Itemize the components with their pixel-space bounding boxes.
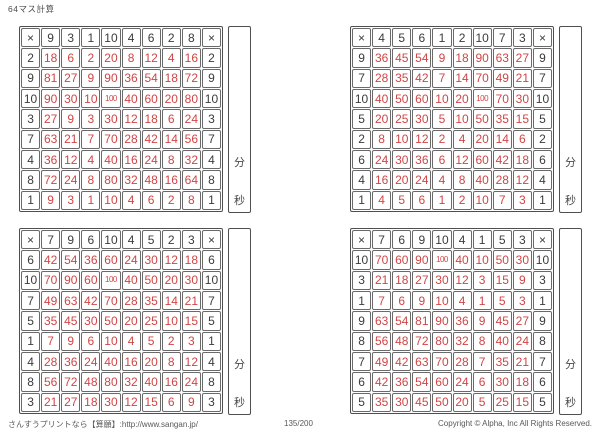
product-cell: 12 bbox=[122, 393, 141, 412]
multiplication-grid-bottom-left: ×796104523×64254366024301218610709060100… bbox=[19, 228, 223, 414]
product-cell: 25 bbox=[392, 109, 411, 128]
product-cell: 42 bbox=[41, 250, 60, 269]
row-factor-cell: 1 bbox=[352, 291, 371, 310]
product-cell: 6 bbox=[162, 393, 181, 412]
product-cell: 6 bbox=[513, 130, 532, 149]
product-cell: 80 bbox=[101, 170, 120, 189]
product-cell: 40 bbox=[101, 352, 120, 371]
product-cell: 30 bbox=[392, 150, 411, 169]
product-cell: 14 bbox=[162, 291, 181, 310]
row-factor-cell: 5 bbox=[352, 109, 371, 128]
row-factor-cell: 8 bbox=[21, 372, 40, 391]
product-cell: 30 bbox=[392, 393, 411, 412]
header-factor-cell: 9 bbox=[61, 230, 80, 249]
row-factor-cell-right: 9 bbox=[533, 311, 552, 330]
product-cell: 35 bbox=[493, 109, 512, 128]
header-factor-cell: 7 bbox=[372, 230, 391, 249]
header-factor-cell: 5 bbox=[142, 230, 161, 249]
header-factor-cell: 9 bbox=[412, 230, 431, 249]
header-factor-cell: 5 bbox=[493, 230, 512, 249]
product-cell: 30 bbox=[101, 393, 120, 412]
product-cell: 64 bbox=[182, 170, 201, 189]
product-cell: 21 bbox=[182, 291, 201, 310]
product-cell: 72 bbox=[412, 332, 431, 351]
product-cell: 12 bbox=[61, 150, 80, 169]
product-cell: 12 bbox=[453, 271, 472, 290]
row-factor-cell-right: 3 bbox=[533, 271, 552, 290]
product-cell: 27 bbox=[61, 393, 80, 412]
product-cell: 16 bbox=[122, 352, 141, 371]
quadrant-top-right: ×456121073×93645549189063279728354271470… bbox=[350, 26, 554, 212]
product-cell: 63 bbox=[493, 48, 512, 67]
product-cell: 24 bbox=[372, 150, 391, 169]
row-factor-cell-right: 6 bbox=[533, 150, 552, 169]
product-cell: 8 bbox=[372, 130, 391, 149]
row-factor-cell-right: 4 bbox=[202, 352, 221, 371]
product-cell: 5 bbox=[493, 291, 512, 310]
product-cell: 49 bbox=[372, 352, 391, 371]
product-cell: 81 bbox=[412, 311, 431, 330]
product-cell: 60 bbox=[81, 271, 100, 290]
product-cell: 3 bbox=[513, 191, 532, 210]
product-cell: 7 bbox=[41, 332, 60, 351]
product-cell: 8 bbox=[453, 170, 472, 189]
product-cell: 50 bbox=[392, 89, 411, 108]
row-factor-cell: 10 bbox=[21, 89, 40, 108]
header-factor-cell: 2 bbox=[162, 230, 181, 249]
product-cell: 8 bbox=[122, 48, 141, 67]
product-cell: 60 bbox=[101, 250, 120, 269]
header-factor-cell: 10 bbox=[432, 230, 451, 249]
quadrant-bottom-right: ×769104153×10706090100401050301032118273… bbox=[350, 228, 554, 414]
row-factor-cell: 2 bbox=[352, 130, 371, 149]
product-cell: 100 bbox=[101, 89, 120, 108]
product-cell: 60 bbox=[412, 89, 431, 108]
product-cell: 5 bbox=[392, 191, 411, 210]
product-cell: 70 bbox=[101, 130, 120, 149]
product-cell: 16 bbox=[372, 170, 391, 189]
product-cell: 10 bbox=[473, 250, 492, 269]
product-cell: 35 bbox=[372, 393, 391, 412]
footer-copyright: Copyright © Alpha, Inc All Rights Reserv… bbox=[438, 419, 592, 428]
product-cell: 7 bbox=[432, 69, 451, 88]
product-cell: 4 bbox=[162, 48, 181, 67]
row-factor-cell: 6 bbox=[21, 250, 40, 269]
product-cell: 28 bbox=[122, 130, 141, 149]
row-factor-cell-right: 8 bbox=[202, 170, 221, 189]
product-cell: 16 bbox=[162, 372, 181, 391]
product-cell: 48 bbox=[81, 372, 100, 391]
product-cell: 10 bbox=[473, 191, 492, 210]
product-cell: 10 bbox=[162, 311, 181, 330]
product-cell: 42 bbox=[493, 150, 512, 169]
product-cell: 24 bbox=[513, 332, 532, 351]
row-factor-cell: 10 bbox=[352, 89, 371, 108]
product-cell: 36 bbox=[412, 150, 431, 169]
product-cell: 36 bbox=[122, 69, 141, 88]
product-cell: 9 bbox=[61, 332, 80, 351]
product-cell: 60 bbox=[142, 89, 161, 108]
product-cell: 56 bbox=[182, 130, 201, 149]
product-cell: 21 bbox=[372, 271, 391, 290]
row-factor-cell-right: 1 bbox=[202, 191, 221, 210]
row-factor-cell-right: 7 bbox=[202, 130, 221, 149]
product-cell: 50 bbox=[473, 109, 492, 128]
product-cell: 60 bbox=[392, 250, 411, 269]
row-factor-cell: 10 bbox=[21, 271, 40, 290]
product-cell: 6 bbox=[412, 191, 431, 210]
product-cell: 18 bbox=[513, 372, 532, 391]
product-cell: 6 bbox=[142, 191, 161, 210]
product-cell: 4 bbox=[432, 170, 451, 189]
row-factor-cell: 1 bbox=[21, 191, 40, 210]
product-cell: 35 bbox=[493, 352, 512, 371]
product-cell: 18 bbox=[81, 393, 100, 412]
product-cell: 9 bbox=[432, 48, 451, 67]
worksheet-page: { "page": { "title": "64マス計算" }, "multip… bbox=[0, 0, 600, 435]
product-cell: 45 bbox=[392, 48, 411, 67]
product-cell: 4 bbox=[81, 150, 100, 169]
header-factor-cell: 3 bbox=[61, 28, 80, 47]
row-factor-cell-right: 2 bbox=[202, 48, 221, 67]
product-cell: 6 bbox=[162, 109, 181, 128]
row-factor-cell-right: 5 bbox=[202, 311, 221, 330]
product-cell: 70 bbox=[493, 89, 512, 108]
product-cell: 27 bbox=[513, 311, 532, 330]
product-cell: 1 bbox=[81, 191, 100, 210]
product-cell: 6 bbox=[81, 332, 100, 351]
product-cell: 70 bbox=[41, 271, 60, 290]
row-factor-cell-right: 8 bbox=[202, 372, 221, 391]
product-cell: 9 bbox=[513, 271, 532, 290]
product-cell: 48 bbox=[392, 332, 411, 351]
product-cell: 30 bbox=[142, 250, 161, 269]
product-cell: 72 bbox=[61, 372, 80, 391]
product-cell: 10 bbox=[392, 130, 411, 149]
product-cell: 54 bbox=[392, 311, 411, 330]
header-factor-cell: 7 bbox=[493, 28, 512, 47]
row-factor-cell-right: 10 bbox=[533, 89, 552, 108]
product-cell: 18 bbox=[392, 271, 411, 290]
product-cell: 20 bbox=[162, 271, 181, 290]
product-cell: 20 bbox=[372, 109, 391, 128]
header-factor-cell: 4 bbox=[122, 230, 141, 249]
product-cell: 6 bbox=[473, 372, 492, 391]
product-cell: 18 bbox=[453, 48, 472, 67]
product-cell: 63 bbox=[372, 311, 391, 330]
product-cell: 25 bbox=[142, 311, 161, 330]
product-cell: 4 bbox=[453, 130, 472, 149]
header-factor-cell: 6 bbox=[392, 230, 411, 249]
row-factor-cell-right: 3 bbox=[202, 393, 221, 412]
row-factor-cell: 3 bbox=[21, 393, 40, 412]
row-factor-cell-right: 10 bbox=[202, 89, 221, 108]
product-cell: 7 bbox=[81, 130, 100, 149]
product-cell: 32 bbox=[182, 150, 201, 169]
product-cell: 4 bbox=[453, 291, 472, 310]
product-cell: 42 bbox=[81, 291, 100, 310]
row-factor-cell: 8 bbox=[21, 170, 40, 189]
product-cell: 10 bbox=[453, 109, 472, 128]
product-cell: 21 bbox=[41, 393, 60, 412]
product-cell: 28 bbox=[41, 352, 60, 371]
multiply-sign-cell: × bbox=[533, 230, 552, 249]
header-factor-cell: 1 bbox=[432, 28, 451, 47]
product-cell: 2 bbox=[162, 191, 181, 210]
product-cell: 50 bbox=[142, 271, 161, 290]
row-factor-cell: 2 bbox=[21, 48, 40, 67]
row-factor-cell-right: 10 bbox=[202, 271, 221, 290]
product-cell: 21 bbox=[513, 352, 532, 371]
row-factor-cell-right: 9 bbox=[202, 69, 221, 88]
row-factor-cell: 1 bbox=[352, 191, 371, 210]
seconds-label: 秒 bbox=[229, 192, 250, 208]
row-factor-cell-right: 1 bbox=[533, 191, 552, 210]
header-factor-cell: 2 bbox=[162, 28, 181, 47]
product-cell: 35 bbox=[392, 69, 411, 88]
product-cell: 40 bbox=[473, 170, 492, 189]
product-cell: 70 bbox=[101, 291, 120, 310]
product-cell: 42 bbox=[392, 352, 411, 371]
product-cell: 30 bbox=[493, 372, 512, 391]
product-cell: 49 bbox=[493, 69, 512, 88]
row-factor-cell: 7 bbox=[352, 69, 371, 88]
product-cell: 12 bbox=[182, 352, 201, 371]
minutes-label: 分 bbox=[560, 356, 581, 372]
header-factor-cell: 4 bbox=[372, 28, 391, 47]
product-cell: 30 bbox=[101, 109, 120, 128]
product-cell: 90 bbox=[101, 69, 120, 88]
product-cell: 24 bbox=[182, 372, 201, 391]
product-cell: 10 bbox=[432, 291, 451, 310]
multiply-sign-cell: × bbox=[533, 28, 552, 47]
row-factor-cell: 10 bbox=[352, 250, 371, 269]
product-cell: 42 bbox=[372, 372, 391, 391]
product-cell: 9 bbox=[61, 109, 80, 128]
product-cell: 9 bbox=[81, 69, 100, 88]
row-factor-cell: 5 bbox=[21, 311, 40, 330]
row-factor-cell: 9 bbox=[352, 48, 371, 67]
row-factor-cell-right: 2 bbox=[533, 130, 552, 149]
product-cell: 8 bbox=[81, 170, 100, 189]
multiply-sign-cell: × bbox=[21, 28, 40, 47]
product-cell: 30 bbox=[81, 311, 100, 330]
product-cell: 24 bbox=[412, 170, 431, 189]
product-cell: 50 bbox=[432, 393, 451, 412]
header-factor-cell: 3 bbox=[513, 230, 532, 249]
product-cell: 40 bbox=[122, 271, 141, 290]
product-cell: 63 bbox=[41, 130, 60, 149]
row-factor-cell-right: 4 bbox=[533, 170, 552, 189]
product-cell: 25 bbox=[493, 393, 512, 412]
product-cell: 9 bbox=[473, 311, 492, 330]
product-cell: 48 bbox=[142, 170, 161, 189]
product-cell: 18 bbox=[513, 150, 532, 169]
product-cell: 32 bbox=[122, 372, 141, 391]
product-cell: 8 bbox=[473, 332, 492, 351]
product-cell: 80 bbox=[432, 332, 451, 351]
product-cell: 20 bbox=[122, 311, 141, 330]
header-factor-cell: 3 bbox=[513, 28, 532, 47]
row-factor-cell-right: 5 bbox=[533, 393, 552, 412]
product-cell: 30 bbox=[412, 109, 431, 128]
footer: さんすうプリントなら【算願】:http://www.sangan.jp/ 135… bbox=[0, 419, 600, 431]
product-cell: 24 bbox=[453, 372, 472, 391]
product-cell: 81 bbox=[41, 69, 60, 88]
product-cell: 9 bbox=[412, 291, 431, 310]
product-cell: 54 bbox=[61, 250, 80, 269]
row-factor-cell-right: 7 bbox=[202, 291, 221, 310]
product-cell: 100 bbox=[432, 250, 451, 269]
product-cell: 20 bbox=[453, 393, 472, 412]
product-cell: 70 bbox=[432, 352, 451, 371]
row-factor-cell: 4 bbox=[21, 352, 40, 371]
row-factor-cell-right: 9 bbox=[533, 48, 552, 67]
product-cell: 40 bbox=[453, 250, 472, 269]
product-cell: 1 bbox=[473, 291, 492, 310]
row-factor-cell: 8 bbox=[352, 332, 371, 351]
product-cell: 90 bbox=[432, 311, 451, 330]
product-cell: 6 bbox=[392, 291, 411, 310]
product-cell: 24 bbox=[182, 109, 201, 128]
product-cell: 10 bbox=[432, 89, 451, 108]
product-cell: 90 bbox=[412, 250, 431, 269]
timer-box-top-left: 分 秒 bbox=[228, 26, 251, 213]
quadrant-bottom-left: ×796104523×64254366024301218610709060100… bbox=[19, 228, 223, 414]
row-factor-cell: 5 bbox=[352, 393, 371, 412]
header-factor-cell: 6 bbox=[142, 28, 161, 47]
product-cell: 24 bbox=[61, 170, 80, 189]
product-cell: 50 bbox=[101, 311, 120, 330]
product-cell: 72 bbox=[182, 69, 201, 88]
product-cell: 3 bbox=[473, 271, 492, 290]
multiply-sign-cell: × bbox=[21, 230, 40, 249]
product-cell: 20 bbox=[101, 48, 120, 67]
product-cell: 12 bbox=[412, 130, 431, 149]
product-cell: 45 bbox=[61, 311, 80, 330]
product-cell: 45 bbox=[412, 393, 431, 412]
product-cell: 1 bbox=[432, 191, 451, 210]
product-cell: 20 bbox=[392, 170, 411, 189]
header-factor-cell: 4 bbox=[122, 28, 141, 47]
product-cell: 24 bbox=[81, 352, 100, 371]
product-cell: 40 bbox=[493, 332, 512, 351]
product-cell: 5 bbox=[142, 332, 161, 351]
product-cell: 90 bbox=[61, 271, 80, 290]
product-cell: 10 bbox=[101, 332, 120, 351]
product-cell: 36 bbox=[372, 48, 391, 67]
timer-box-bottom-right: 分 秒 bbox=[559, 228, 582, 415]
header-factor-cell: 5 bbox=[392, 28, 411, 47]
row-factor-cell: 7 bbox=[352, 352, 371, 371]
product-cell: 27 bbox=[513, 48, 532, 67]
product-cell: 3 bbox=[513, 291, 532, 310]
product-cell: 18 bbox=[41, 48, 60, 67]
product-cell: 45 bbox=[493, 311, 512, 330]
product-cell: 54 bbox=[142, 69, 161, 88]
row-factor-cell-right: 1 bbox=[533, 291, 552, 310]
product-cell: 4 bbox=[122, 191, 141, 210]
product-cell: 35 bbox=[142, 291, 161, 310]
product-cell: 42 bbox=[412, 69, 431, 88]
product-cell: 27 bbox=[412, 271, 431, 290]
product-cell: 14 bbox=[493, 130, 512, 149]
product-cell: 12 bbox=[142, 48, 161, 67]
product-cell: 36 bbox=[61, 352, 80, 371]
row-factor-cell-right: 8 bbox=[533, 332, 552, 351]
product-cell: 28 bbox=[453, 352, 472, 371]
product-cell: 100 bbox=[473, 89, 492, 108]
product-cell: 5 bbox=[432, 109, 451, 128]
product-cell: 70 bbox=[473, 69, 492, 88]
page-title: 64マス計算 bbox=[8, 3, 54, 15]
product-cell: 40 bbox=[142, 372, 161, 391]
header-factor-cell: 1 bbox=[473, 230, 492, 249]
product-cell: 12 bbox=[453, 150, 472, 169]
product-cell: 40 bbox=[372, 89, 391, 108]
header-factor-cell: 10 bbox=[473, 28, 492, 47]
timer-box-bottom-left: 分 秒 bbox=[228, 228, 251, 415]
product-cell: 72 bbox=[41, 170, 60, 189]
timer-box-top-right: 分 秒 bbox=[559, 26, 582, 213]
product-cell: 21 bbox=[61, 130, 80, 149]
product-cell: 36 bbox=[41, 150, 60, 169]
product-cell: 15 bbox=[142, 393, 161, 412]
minutes-label: 分 bbox=[229, 356, 250, 372]
product-cell: 7 bbox=[473, 352, 492, 371]
product-cell: 100 bbox=[101, 271, 120, 290]
product-cell: 50 bbox=[493, 250, 512, 269]
product-cell: 15 bbox=[513, 109, 532, 128]
row-factor-cell-right: 4 bbox=[202, 150, 221, 169]
product-cell: 18 bbox=[182, 250, 201, 269]
product-cell: 14 bbox=[162, 130, 181, 149]
product-cell: 20 bbox=[453, 89, 472, 108]
row-factor-cell: 6 bbox=[352, 372, 371, 391]
product-cell: 16 bbox=[162, 170, 181, 189]
product-cell: 12 bbox=[162, 250, 181, 269]
product-cell: 9 bbox=[41, 191, 60, 210]
product-cell: 36 bbox=[392, 372, 411, 391]
product-cell: 90 bbox=[473, 48, 492, 67]
seconds-label: 秒 bbox=[229, 394, 250, 410]
header-factor-cell: 7 bbox=[41, 230, 60, 249]
product-cell: 6 bbox=[432, 150, 451, 169]
header-factor-cell: 10 bbox=[101, 28, 120, 47]
product-cell: 3 bbox=[61, 191, 80, 210]
product-cell: 5 bbox=[473, 393, 492, 412]
product-cell: 16 bbox=[182, 48, 201, 67]
multiplication-grid-top-right: ×456121073×93645549189063279728354271470… bbox=[350, 26, 554, 212]
product-cell: 15 bbox=[493, 271, 512, 290]
minutes-label: 分 bbox=[229, 154, 250, 170]
row-factor-cell-right: 3 bbox=[202, 109, 221, 128]
product-cell: 18 bbox=[142, 109, 161, 128]
product-cell: 2 bbox=[81, 48, 100, 67]
product-cell: 15 bbox=[182, 311, 201, 330]
header-factor-cell: 6 bbox=[412, 28, 431, 47]
product-cell: 15 bbox=[513, 393, 532, 412]
row-factor-cell-right: 6 bbox=[533, 372, 552, 391]
product-cell: 8 bbox=[162, 352, 181, 371]
product-cell: 36 bbox=[453, 311, 472, 330]
product-cell: 56 bbox=[41, 372, 60, 391]
row-factor-cell: 3 bbox=[352, 271, 371, 290]
row-factor-cell-right: 7 bbox=[533, 69, 552, 88]
row-factor-cell: 7 bbox=[21, 130, 40, 149]
product-cell: 3 bbox=[182, 332, 201, 351]
multiplication-grid-top-left: ×931104628×21862208124162981279903654187… bbox=[19, 26, 223, 212]
